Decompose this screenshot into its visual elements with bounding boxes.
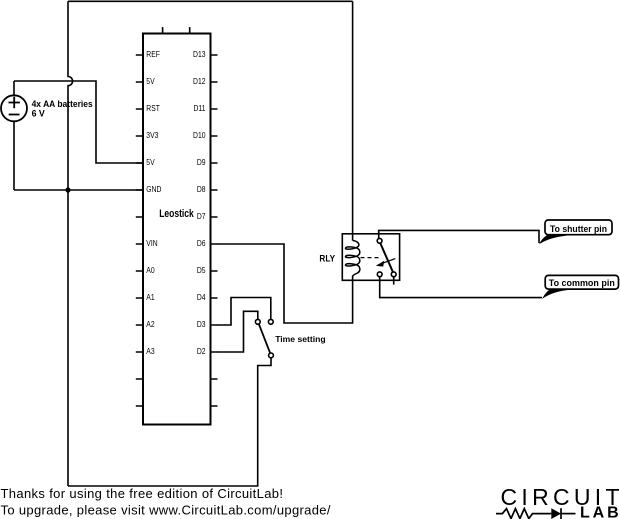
svg-text:D12: D12 (193, 76, 205, 86)
svg-text:Thanks for using the free edit: Thanks for using the free edition of Cir… (1, 486, 284, 501)
svg-text:To upgrade, please visit www.C: To upgrade, please visit www.CircuitLab.… (1, 502, 331, 517)
svg-text:A2: A2 (146, 319, 154, 329)
svg-text:To common pin: To common pin (549, 278, 615, 288)
svg-text:A1: A1 (146, 292, 154, 302)
svg-text:D2: D2 (197, 346, 206, 356)
svg-text:5V: 5V (146, 76, 154, 86)
svg-text:D6: D6 (197, 238, 206, 248)
svg-text:6 V: 6 V (32, 108, 45, 118)
svg-text:D4: D4 (197, 292, 206, 302)
svg-text:A0: A0 (146, 265, 154, 275)
svg-text:D8: D8 (197, 184, 206, 194)
svg-text:A3: A3 (146, 346, 154, 356)
svg-text:D3: D3 (197, 319, 206, 329)
svg-text:D7: D7 (197, 211, 206, 221)
svg-text:D10: D10 (193, 130, 205, 140)
svg-text:D11: D11 (194, 103, 206, 113)
svg-text:REF: REF (146, 49, 160, 59)
svg-text:D9: D9 (197, 157, 206, 167)
svg-text:D13: D13 (193, 49, 205, 59)
svg-text:Leostick: Leostick (159, 208, 194, 220)
svg-text:RLY: RLY (319, 254, 335, 264)
svg-text:5V: 5V (146, 157, 154, 167)
svg-text:3V3: 3V3 (146, 130, 158, 140)
svg-text:GND: GND (146, 184, 161, 194)
svg-text:LAB: LAB (580, 505, 619, 519)
svg-text:RST: RST (146, 103, 160, 113)
svg-text:VIN: VIN (146, 238, 157, 248)
svg-text:Time setting: Time setting (275, 334, 325, 344)
svg-text:To shutter pin: To shutter pin (550, 224, 607, 234)
svg-text:D5: D5 (197, 265, 206, 275)
